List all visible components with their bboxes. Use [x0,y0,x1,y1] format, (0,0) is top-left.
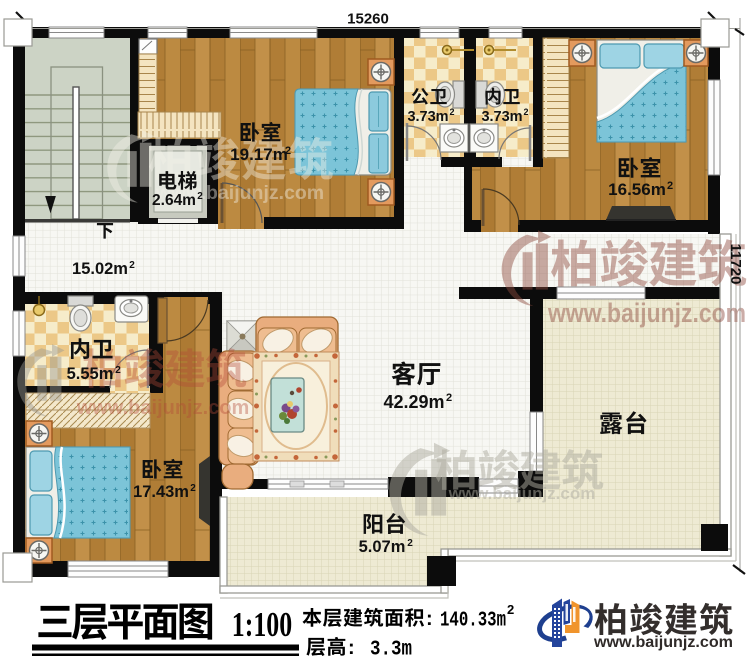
svg-text:5.07m: 5.07m [359,538,406,556]
svg-text:19.17m: 19.17m [230,145,288,164]
svg-text:2: 2 [446,392,452,404]
svg-text:www.baijunjz.com: www.baijunjz.com [593,634,733,651]
svg-text:2: 2 [129,260,135,271]
svg-text:2: 2 [197,191,203,202]
svg-text::: : [348,637,355,659]
svg-text:3.73m: 3.73m [481,109,522,125]
svg-text:3.3m: 3.3m [370,639,412,662]
svg-text:2: 2 [667,180,673,192]
svg-text:www.baijunjz.com: www.baijunjz.com [547,298,746,328]
svg-text::: : [426,608,433,630]
svg-text:140.33m: 140.33m [440,610,506,633]
svg-text:17.43m: 17.43m [133,483,189,501]
svg-text:2.64m: 2.64m [152,192,196,209]
svg-text:2: 2 [523,107,528,117]
svg-text:42.29m: 42.29m [383,392,444,412]
svg-text:2: 2 [285,145,291,157]
svg-text:1:100: 1:100 [232,605,292,644]
svg-text:www.baijunjz.com: www.baijunjz.com [76,397,250,419]
svg-text:2: 2 [449,107,454,117]
svg-text:16.56m: 16.56m [608,180,666,199]
svg-text:3.73m: 3.73m [407,109,448,125]
svg-text:15.02m: 15.02m [72,260,128,278]
svg-text:2: 2 [407,538,413,549]
svg-text:2: 2 [507,602,514,617]
svg-text:15260: 15260 [347,11,389,28]
svg-text:11720: 11720 [727,244,744,285]
svg-text:5.55m: 5.55m [67,365,114,383]
svg-text:2: 2 [190,483,196,494]
svg-text:2: 2 [115,365,121,376]
svg-text:www.baijunjz.com: www.baijunjz.com [448,484,596,503]
